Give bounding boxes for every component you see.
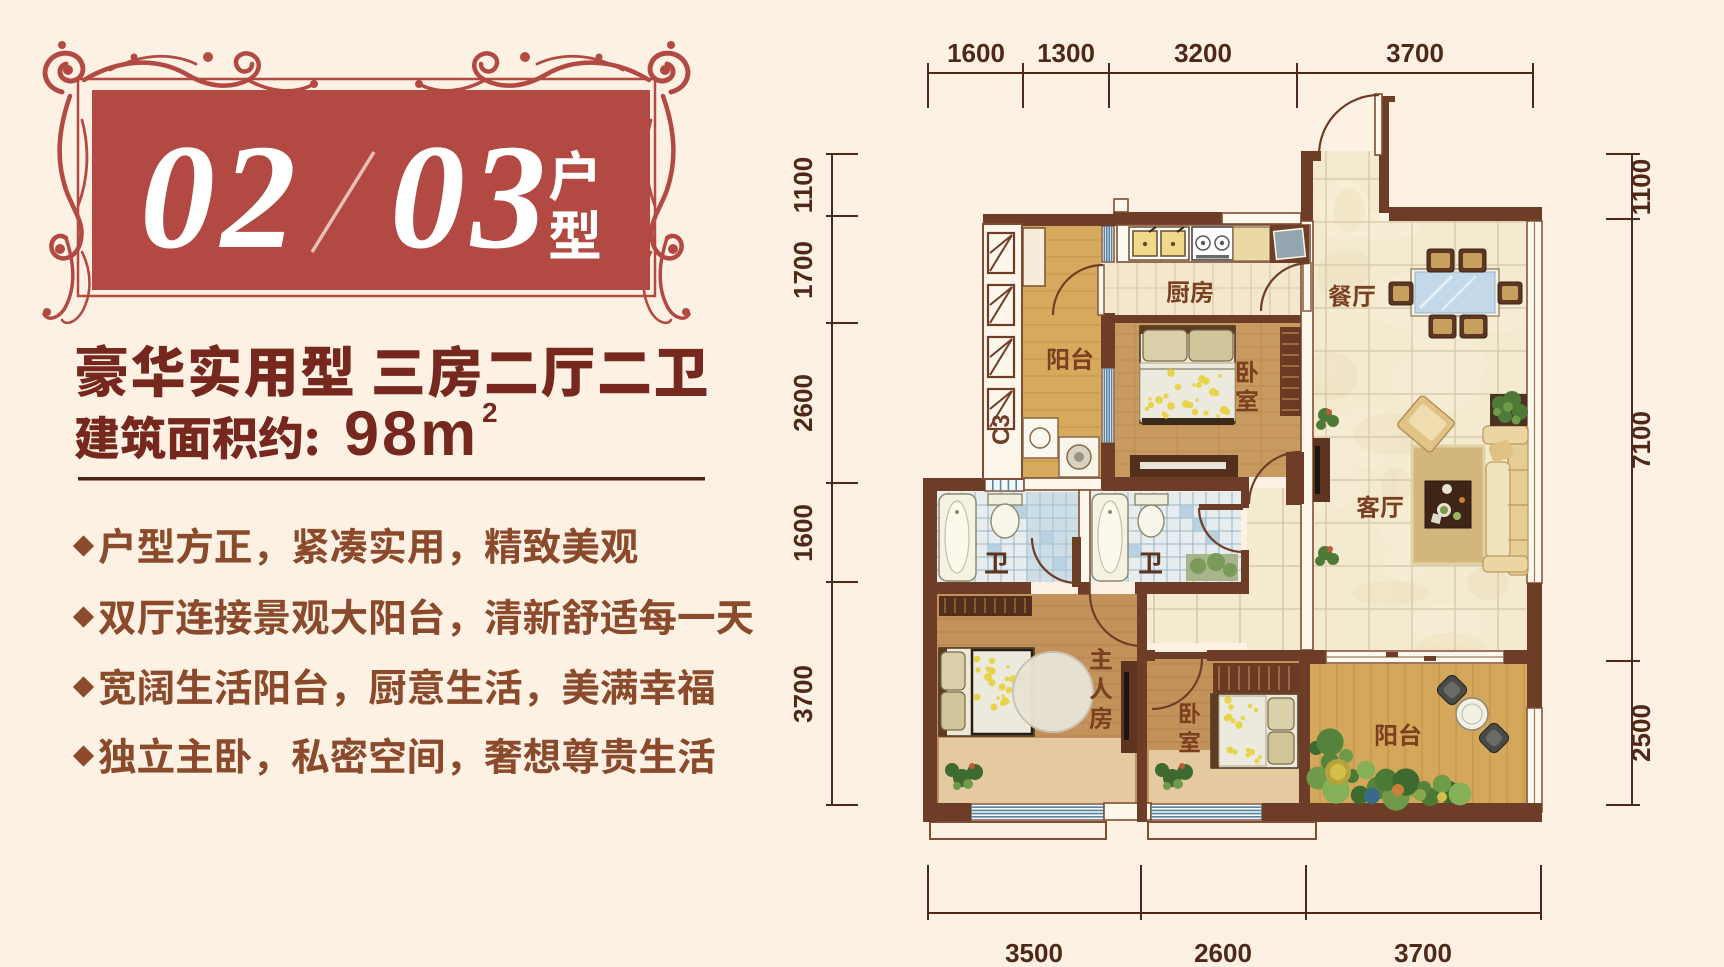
svg-text:1600: 1600 (947, 38, 1005, 68)
svg-text:1700: 1700 (788, 241, 818, 299)
svg-text:1100: 1100 (1626, 159, 1656, 215)
svg-text:2: 2 (482, 397, 498, 428)
svg-text:2600: 2600 (788, 374, 818, 432)
svg-text:7100: 7100 (1626, 411, 1656, 469)
svg-text:02: 02 (140, 114, 302, 280)
svg-text:3700: 3700 (788, 665, 818, 723)
svg-text:1100: 1100 (788, 157, 818, 213)
svg-text:3500: 3500 (1005, 938, 1063, 967)
svg-text:2500: 2500 (1626, 704, 1656, 762)
svg-text:1600: 1600 (788, 504, 818, 562)
svg-text:3200: 3200 (1174, 38, 1232, 68)
svg-text:03: 03 (390, 114, 552, 280)
svg-text:3700: 3700 (1394, 938, 1452, 967)
svg-text:2600: 2600 (1194, 938, 1252, 967)
svg-text:98m: 98m (344, 399, 479, 469)
svg-text:3700: 3700 (1386, 38, 1444, 68)
svg-text:1300: 1300 (1037, 38, 1095, 68)
